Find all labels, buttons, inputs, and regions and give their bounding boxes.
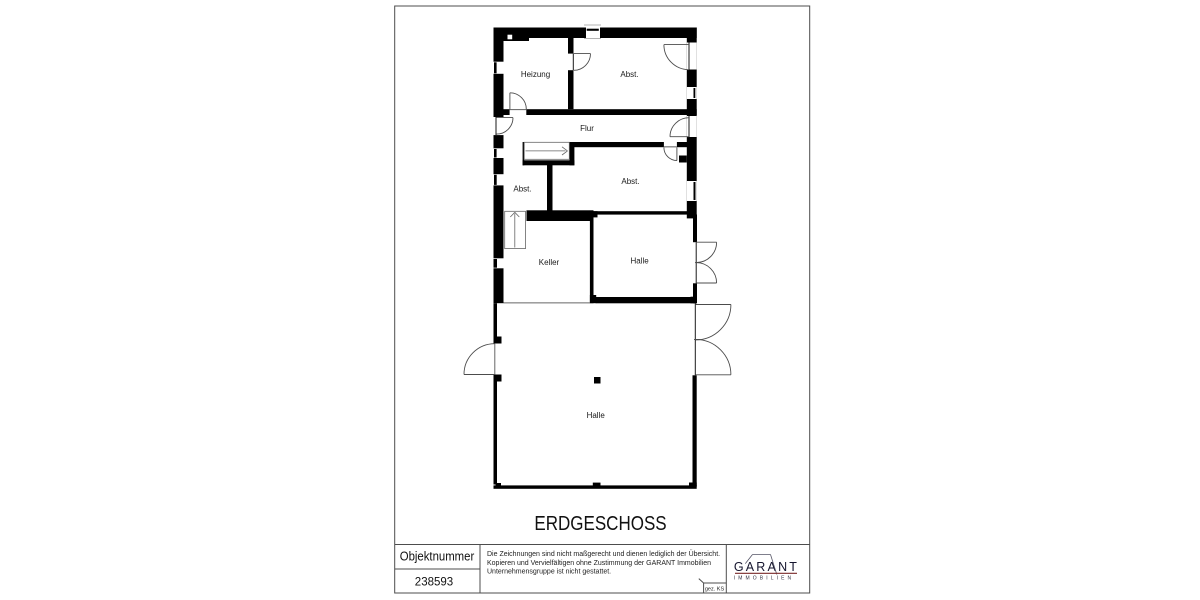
svg-text:Unternehmensgruppe ist nicht g: Unternehmensgruppe ist nicht gestattet. [487,569,611,576]
svg-text:ERDGESCHOSS: ERDGESCHOSS [534,511,666,534]
svg-text:Halle: Halle [630,257,649,266]
svg-text:Heizung: Heizung [521,70,550,79]
svg-text:Flur: Flur [580,124,594,133]
svg-text:Abst.: Abst. [620,70,638,79]
svg-text:Keller: Keller [539,258,560,267]
svg-text:gez. KS: gez. KS [705,587,725,593]
svg-text:IMMOBILIEN: IMMOBILIEN [734,576,794,582]
svg-text:Die Zeichnungen sind nicht maß: Die Zeichnungen sind nicht maßgerecht un… [487,550,720,558]
svg-text:Objektnummer: Objektnummer [400,549,475,564]
svg-text:238593: 238593 [415,575,454,588]
svg-text:GARANT: GARANT [734,560,799,574]
svg-text:Abst.: Abst. [513,184,531,193]
svg-text:Halle: Halle [587,411,606,420]
svg-text:Abst.: Abst. [621,177,639,186]
svg-text:Kopieren und Vervielfältigen o: Kopieren und Vervielfältigen ohne Zustim… [487,560,711,567]
